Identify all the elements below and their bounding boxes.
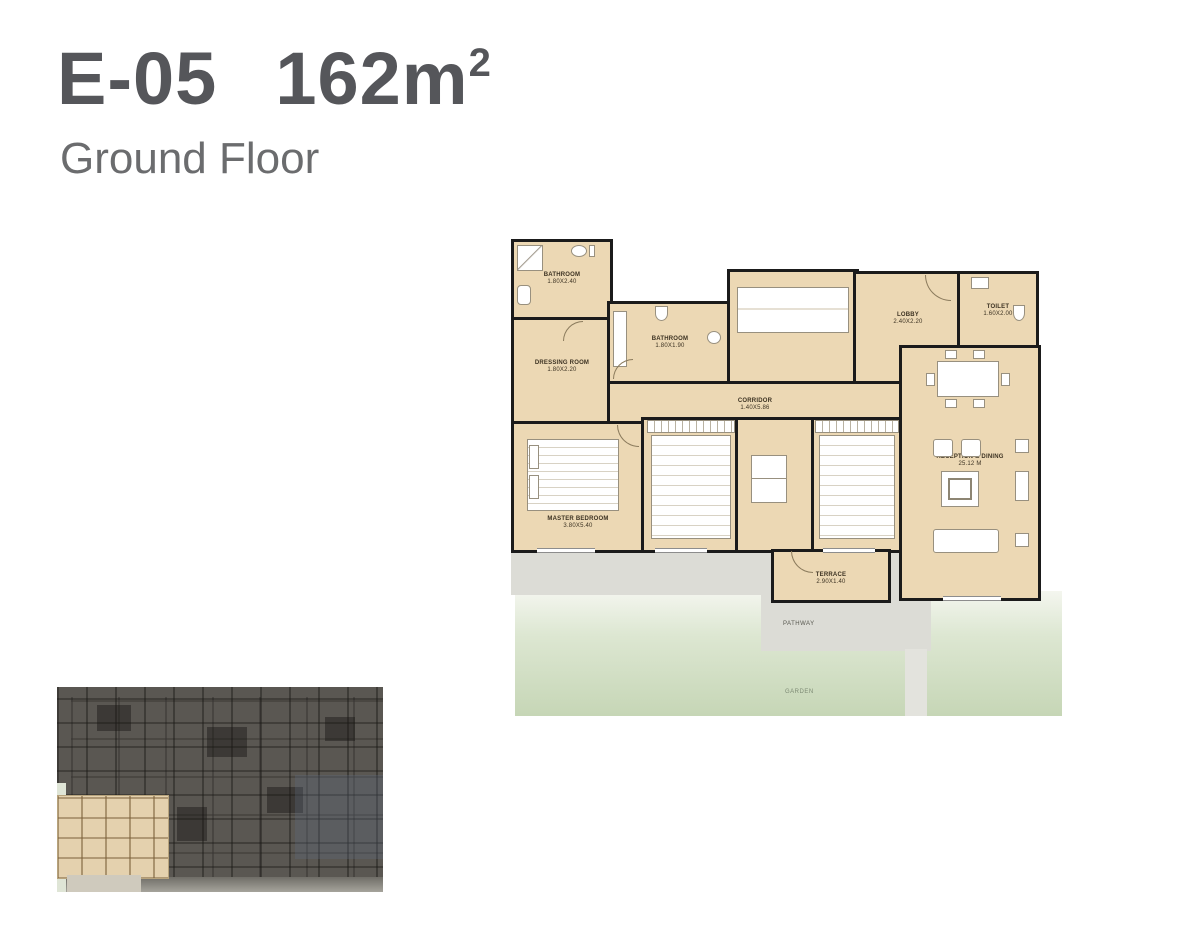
- garden-label: GARDEN: [785, 689, 814, 695]
- room-label: CORRIDOR 1.40X5.86: [610, 398, 900, 412]
- chair-icon: [926, 373, 935, 386]
- toilet-icon: [571, 245, 587, 257]
- room-terrace: TERRACE 2.90X1.40: [771, 549, 891, 603]
- master-bed-icon: [527, 439, 619, 511]
- bathtub-icon: [613, 311, 627, 367]
- wardrobe-icon: [815, 420, 899, 433]
- desk-icon: [751, 455, 787, 503]
- window-icon: [537, 548, 595, 553]
- window-icon: [943, 596, 1001, 601]
- pathway-label: PATHWAY: [783, 621, 815, 627]
- window-icon: [823, 548, 875, 553]
- room-toilet: TOILET 1.60X2.00: [957, 271, 1039, 348]
- unit-area-superscript: 2: [469, 41, 492, 85]
- room-dressing-room: DRESSING ROOM 1.80X2.20: [511, 317, 613, 424]
- sofa-icon: [933, 529, 999, 553]
- chair-icon: [945, 399, 957, 408]
- sink-icon: [707, 331, 721, 344]
- room-label: BATHROOM 1.80X2.40: [514, 272, 610, 286]
- room-label: MASTER BEDROOM 3.80X5.40: [514, 516, 642, 530]
- highlighted-unit: [57, 795, 169, 879]
- chair-icon: [973, 399, 985, 408]
- toilet-tank-icon: [589, 245, 595, 257]
- page-title: E-05162m2: [57, 36, 492, 121]
- armchair-icon: [933, 439, 953, 457]
- room-label: DRESSING ROOM 1.80X2.20: [514, 360, 610, 374]
- unit-area: 162m: [275, 37, 468, 120]
- sink-icon: [517, 285, 531, 305]
- highlighted-unit-extension: [67, 875, 141, 892]
- key-plan-block: [97, 705, 131, 731]
- toilet-icon: [655, 306, 668, 321]
- sink-icon: [971, 277, 989, 289]
- side-table-icon: [1015, 471, 1029, 501]
- key-plan-thumbnail: [57, 687, 383, 892]
- toilet-icon: [1013, 305, 1025, 321]
- room-label: TERRACE 2.90X1.40: [774, 572, 888, 586]
- kitchen-counter-icon: [737, 287, 849, 333]
- key-plan-block: [207, 727, 247, 757]
- side-table-icon: [1015, 439, 1029, 453]
- room-label: LOBBY 2.40X2.20: [856, 312, 960, 326]
- unit-code: E-05: [57, 37, 217, 120]
- wardrobe-icon: [647, 420, 735, 433]
- chair-icon: [1001, 373, 1010, 386]
- pathway-strip: [905, 649, 927, 716]
- pillow-icon: [529, 445, 539, 469]
- chair-icon: [973, 350, 985, 359]
- shower-icon: [517, 245, 543, 271]
- pathway-left: [511, 547, 773, 595]
- side-table-icon: [1015, 533, 1029, 547]
- desk-divider: [751, 478, 787, 479]
- armchair-icon: [961, 439, 981, 457]
- floor-plan: PATHWAY GARDEN BATHROOM 1.80X2.40 DRESSI…: [505, 233, 1062, 716]
- key-plan-tint: [295, 775, 383, 859]
- pillow-icon: [529, 475, 539, 499]
- key-plan-block: [325, 717, 355, 741]
- page: { "header": { "unit_code": "E-05", "area…: [0, 0, 1200, 948]
- bedroom2-bed-icon: [651, 435, 731, 539]
- bedroom1-bed-icon: [819, 435, 895, 539]
- key-plan-block: [177, 807, 207, 841]
- chair-icon: [945, 350, 957, 359]
- floor-subtitle: Ground Floor: [60, 134, 319, 184]
- window-icon: [655, 548, 707, 553]
- dining-table-icon: [937, 361, 999, 397]
- coffee-table-inner: [948, 478, 972, 500]
